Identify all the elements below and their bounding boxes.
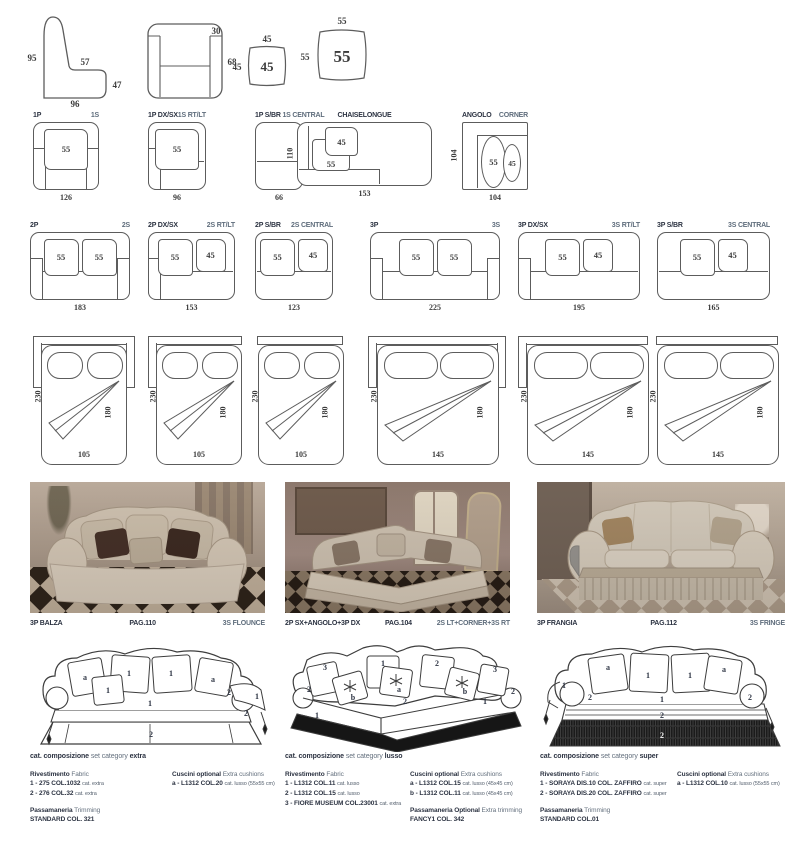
svg-text:2: 2 [403, 697, 407, 706]
module-height: 104 [450, 146, 459, 166]
cushions-column: Cuscini optional Extra cushions a - L131… [410, 770, 522, 824]
svg-text:1: 1 [169, 669, 173, 678]
corner-cushion-45: 45 [503, 144, 521, 182]
caption-balza: 3P BALZA PAG.110 3S FLOUNCE [30, 620, 265, 627]
info-block-lusso: cat. composizione set category lusso Riv… [285, 752, 535, 848]
sketch-corner-sofa: 3 1 2 3 b a b 2 1 2 2 1 [283, 640, 531, 752]
module-1p: 1P1S 55 126 [33, 112, 99, 202]
sofa-bed-105-left-arm: 105 180 230 [148, 330, 242, 470]
caption-page: PAG.110 [129, 620, 156, 627]
svg-text:3: 3 [493, 665, 497, 674]
dim-seat-depth: 57 [81, 57, 91, 67]
sketch-balza-sofa: a 1 1 a 1 1 2 1 2 2 [25, 642, 275, 750]
sketch-fringe-sofa: a 1 1 a 1 2 1 2 2 2 [538, 642, 786, 752]
cushion-small-diagram: 45 45 45 [228, 34, 294, 94]
module-1p-sbr: 1P S/BR 1S CENTRAL 66 [255, 112, 303, 202]
module-3p: 3P3S 55 55 225 [370, 222, 500, 312]
svg-text:1: 1 [255, 692, 259, 701]
trimming-optional: Passamaneria Optional Extra trimming FAN… [410, 806, 522, 824]
cushion45-left: 45 [233, 62, 243, 72]
category-line: cat. composizione set category extra [30, 752, 275, 761]
svg-text:2: 2 [660, 731, 664, 740]
module-height: 110 [286, 144, 295, 164]
module-3p-dxsx: 3P DX/SX3S RT/LT 55 45 195 [518, 222, 640, 312]
sketch-label: a [83, 673, 87, 682]
cushion45-top: 45 [263, 34, 273, 44]
svg-text:1: 1 [315, 711, 319, 720]
module-plan: 55 [33, 122, 99, 190]
info-block-extra: cat. composizione set category extra Riv… [30, 752, 275, 848]
svg-text:2: 2 [307, 685, 311, 694]
svg-text:2: 2 [435, 659, 439, 668]
fabric-column: Rivestimento Fabric 1 - 275 COL.1032 cat… [30, 770, 104, 824]
cushion55-center: 55 [334, 47, 351, 66]
svg-text:a: a [722, 665, 726, 674]
module-label-it: 1P [33, 112, 41, 119]
photo-3p-balza [30, 482, 265, 613]
svg-text:b: b [463, 687, 468, 696]
svg-text:1: 1 [127, 669, 131, 678]
info-block-super: cat. composizione set category super Riv… [540, 752, 785, 848]
cushions-column: Cuscini optional Extra cushions a - L131… [677, 770, 780, 789]
cushion: 55 [155, 129, 199, 170]
svg-text:1: 1 [688, 671, 692, 680]
svg-text:1: 1 [148, 699, 152, 708]
side-profile-diagram: 95 57 47 96 [22, 8, 132, 108]
sketch-label: 3 [323, 663, 327, 672]
fabric-column: Rivestimento Fabric 1 - L1312 COL.11 cat… [285, 770, 401, 809]
svg-text:2: 2 [588, 693, 592, 702]
fringe-sofa-photo-silhouette [565, 494, 777, 606]
cushion-large-diagram: 55 55 55 [296, 14, 376, 94]
cushions-column: Cuscini optional Extra cushions a - L131… [172, 770, 275, 789]
cushion: 55 [44, 129, 88, 170]
svg-text:b: b [351, 693, 356, 702]
photo-corner-composition [285, 482, 510, 613]
dim-seat-height: 47 [113, 80, 123, 90]
corner-sofa-photo-silhouette [293, 516, 501, 612]
sofa-bed-145-both-arms: 145 180 230 [368, 330, 506, 470]
sofa-bed-105-both-arms: 105 180 230 [33, 330, 135, 470]
svg-text:2: 2 [227, 688, 231, 697]
trimming: Passamaneria Trimming STANDARD COL. 321 [30, 806, 104, 824]
caption-frangia: 3P FRANGIA PAG.112 3S FRINGE [537, 620, 785, 627]
trimming: Passamaneria Trimming STANDARD COL.01 [540, 806, 667, 824]
cushion55-left: 55 [301, 52, 311, 62]
dim-total-depth: 96 [71, 99, 81, 108]
module-2p-sbr: 2P S/BR2S CENTRAL 55 45 123 [255, 222, 333, 312]
module-chaiselongue: CHAISELONGUE 55 45 110 153 [297, 112, 432, 198]
svg-text:2: 2 [511, 687, 515, 696]
svg-text:2: 2 [660, 711, 664, 720]
module-2p-dxsx: 2P DX/SX2S RT/LT 55 45 153 [148, 222, 235, 312]
svg-text:1: 1 [106, 686, 110, 695]
module-width: 126 [33, 193, 99, 202]
svg-text:2: 2 [149, 730, 153, 739]
cushion-line: a - L1312 COL.20 cat. lusso (55x55 cm) [172, 779, 275, 789]
svg-text:2: 2 [748, 693, 752, 702]
svg-text:1: 1 [660, 695, 664, 704]
svg-text:1: 1 [381, 659, 385, 668]
svg-text:2: 2 [244, 709, 248, 718]
caption-corner: 2P SX+ANGOLO+3P DX PAG.104 2S LT+CORNER+… [285, 620, 510, 627]
fabric-column: Rivestimento Fabric 1 - SORAYA DIS.10 CO… [540, 770, 667, 824]
photo-3p-frangia [537, 482, 785, 613]
svg-text:1: 1 [483, 697, 487, 706]
svg-text:1: 1 [646, 671, 650, 680]
fabric-line: 2 - 276 COL.32 cat. extra [30, 789, 104, 799]
module-3p-sbr: 3P S/BR3S CENTRAL 55 45 165 [657, 222, 770, 312]
dim-back-height: 95 [28, 53, 38, 63]
cushion45-center: 45 [261, 59, 275, 74]
svg-text:a: a [397, 685, 401, 694]
cushion: 45 [325, 127, 358, 156]
dim-arm-width: 30 [212, 26, 222, 36]
caption-en: 3S FLOUNCE [223, 620, 265, 627]
module-2p: 2P2S 55 55 183 [30, 222, 130, 312]
sofa-bed-145-armless: 145 180 230 [655, 330, 779, 470]
module-corner: ANGOLOCORNER 55 45 104 104 [462, 112, 528, 202]
caption-it: 3P BALZA [30, 620, 63, 627]
front-view-diagram: 30 68 [140, 18, 240, 103]
sketch-label: a [606, 663, 610, 672]
sofa-bed-145-left-arm: 145 180 230 [518, 330, 648, 470]
module-label-en: 1S [91, 112, 99, 119]
catalog-page: 95 57 47 96 30 68 45 45 45 55 55 55 1P1S… [0, 0, 787, 852]
svg-text:a: a [211, 675, 215, 684]
sofa-photo-silhouette [46, 496, 248, 604]
sofa-bed-105-armless: 105 180 230 [256, 330, 344, 470]
svg-text:1: 1 [562, 681, 566, 690]
fabric-line: 1 - 275 COL.1032 cat. extra [30, 779, 104, 789]
cushion55-top: 55 [338, 16, 348, 26]
module-1p-dxsx: 1P DX/SX1S RT/LT 55 96 [148, 112, 206, 202]
